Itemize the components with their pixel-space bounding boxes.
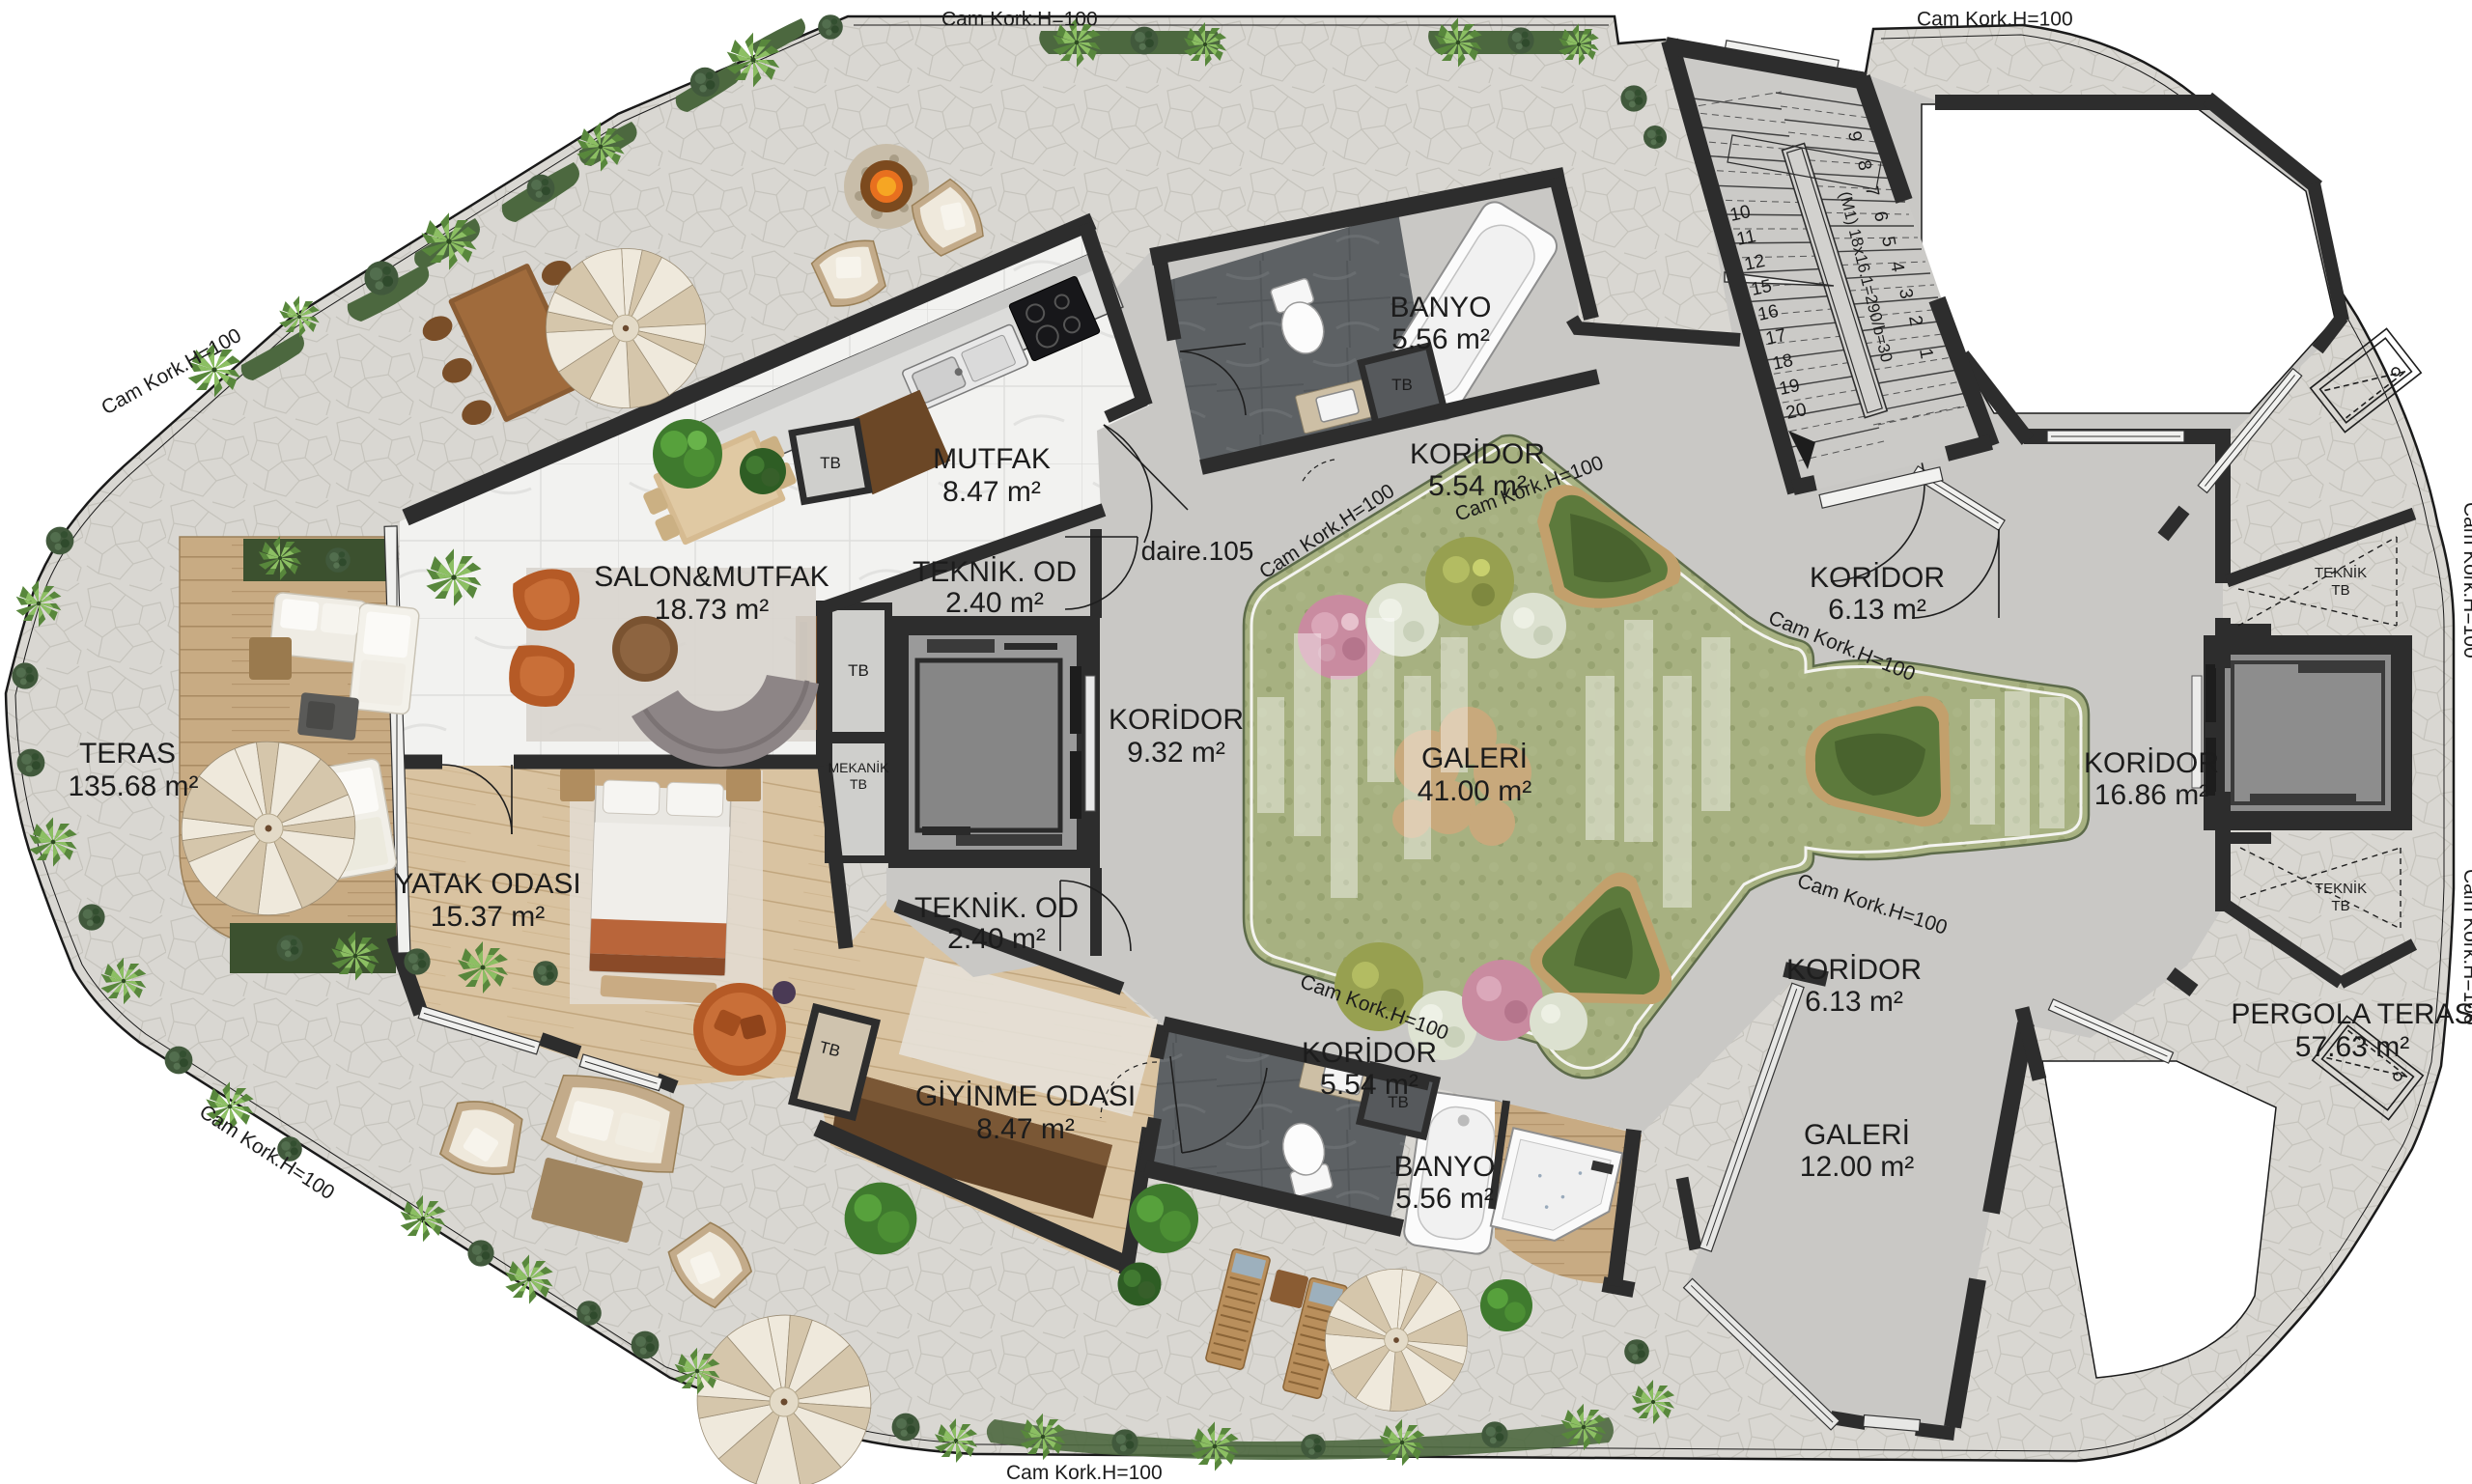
svg-text:YATAK ODASI: YATAK ODASI: [394, 868, 580, 900]
svg-text:Cam Kork.H=100: Cam Kork.H=100: [1917, 8, 2073, 30]
svg-text:5.56 m²: 5.56 m²: [1395, 1183, 1494, 1215]
svg-text:15: 15: [1750, 276, 1774, 300]
svg-text:16.86 m²: 16.86 m²: [2094, 779, 2208, 811]
svg-text:TB: TB: [1388, 1093, 1409, 1111]
svg-text:TB: TB: [820, 454, 841, 472]
svg-text:5.56 m²: 5.56 m²: [1391, 323, 1490, 355]
svg-text:18: 18: [1771, 350, 1795, 375]
svg-text:2.40 m²: 2.40 m²: [945, 587, 1044, 619]
svg-text:GALERİ: GALERİ: [1421, 742, 1528, 774]
svg-text:KORİDOR: KORİDOR: [1810, 562, 1945, 594]
svg-text:6.13 m²: 6.13 m²: [1805, 986, 1903, 1018]
svg-text:Cam Kork.H=100: Cam Kork.H=100: [1006, 1462, 1163, 1484]
svg-text:KORİDOR: KORİDOR: [1786, 954, 1922, 986]
svg-text:TEKNİK: TEKNİK: [2315, 880, 2367, 897]
svg-text:KORİDOR: KORİDOR: [1410, 438, 1545, 470]
svg-text:daire.105: daire.105: [1141, 536, 1254, 566]
svg-text:KORİDOR: KORİDOR: [1109, 704, 1244, 736]
svg-text:15.37 m²: 15.37 m²: [431, 901, 545, 933]
svg-text:TEKNİK: TEKNİK: [2315, 564, 2367, 581]
svg-text:KORİDOR: KORİDOR: [2084, 747, 2219, 779]
svg-text:TB: TB: [848, 661, 869, 680]
svg-text:20: 20: [1784, 400, 1809, 424]
svg-text:16: 16: [1756, 301, 1781, 325]
svg-text:12.00 m²: 12.00 m²: [1800, 1151, 1914, 1183]
svg-text:Cam Kork.H=100: Cam Kork.H=100: [2459, 502, 2472, 658]
svg-text:9.32 m²: 9.32 m²: [1127, 737, 1225, 769]
svg-text:MUTFAK: MUTFAK: [933, 443, 1051, 475]
svg-text:TB: TB: [850, 776, 867, 792]
svg-text:18.73 m²: 18.73 m²: [655, 594, 769, 626]
svg-text:TERAS: TERAS: [79, 738, 176, 770]
svg-text:12: 12: [1743, 251, 1767, 275]
svg-text:TB: TB: [1391, 376, 1413, 394]
svg-text:MEKANİK: MEKANİK: [828, 759, 889, 775]
svg-text:8.47 m²: 8.47 m²: [976, 1113, 1075, 1145]
svg-text:TEKNİK. OD: TEKNİK. OD: [914, 892, 1079, 924]
svg-text:SALON&MUTFAK: SALON&MUTFAK: [594, 561, 829, 593]
svg-text:BANYO: BANYO: [1390, 292, 1491, 323]
svg-text:Cam Kork.H=100: Cam Kork.H=100: [2459, 869, 2472, 1025]
svg-text:TB: TB: [2331, 898, 2349, 914]
svg-text:8.47 m²: 8.47 m²: [942, 476, 1041, 508]
svg-text:57.63 m²: 57.63 m²: [2295, 1031, 2409, 1063]
svg-text:19: 19: [1778, 376, 1802, 400]
svg-text:2.40 m²: 2.40 m²: [947, 923, 1046, 955]
svg-text:BANYO: BANYO: [1393, 1151, 1495, 1183]
svg-text:PERGOLA TERAS: PERGOLA TERAS: [2231, 998, 2472, 1030]
svg-text:TEKNİK. OD: TEKNİK. OD: [913, 556, 1077, 588]
svg-text:KORİDOR: KORİDOR: [1302, 1037, 1437, 1069]
svg-text:GALERİ: GALERİ: [1804, 1119, 1910, 1151]
svg-text:TB: TB: [2331, 582, 2349, 599]
svg-text:41.00 m²: 41.00 m²: [1418, 775, 1531, 807]
svg-text:Cam Kork.H=100: Cam Kork.H=100: [941, 8, 1098, 30]
svg-text:17: 17: [1764, 325, 1788, 350]
svg-text:6.13 m²: 6.13 m²: [1828, 594, 1926, 626]
svg-text:135.68 m²: 135.68 m²: [68, 770, 198, 802]
svg-text:10: 10: [1728, 202, 1753, 226]
svg-text:GİYİNME ODASI: GİYİNME ODASI: [915, 1080, 1136, 1112]
